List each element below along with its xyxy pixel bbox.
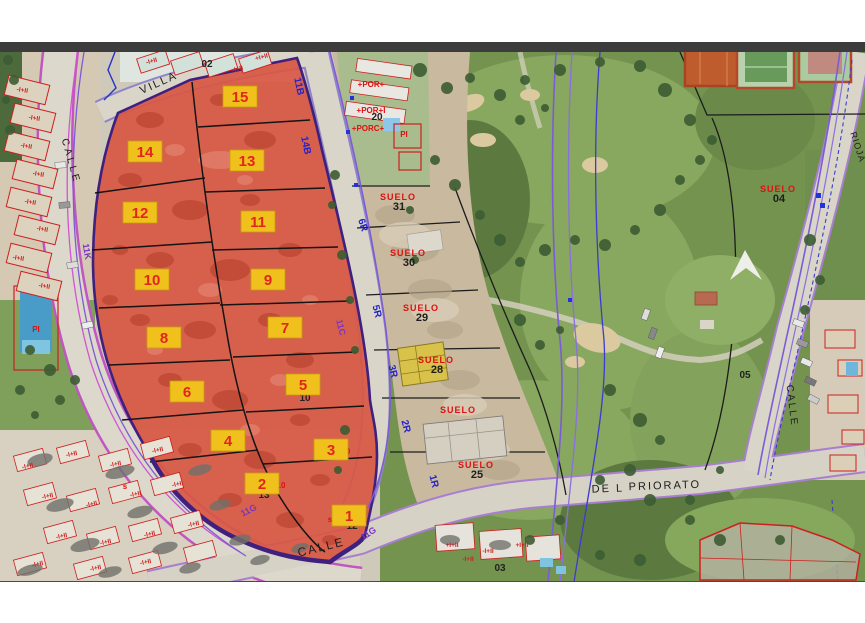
tree (630, 225, 640, 235)
tree (775, 535, 785, 545)
tree (541, 104, 549, 112)
tree (604, 384, 616, 396)
tree (413, 63, 427, 77)
parcel-tag-2: 2 (245, 473, 279, 494)
tree (555, 515, 565, 525)
tree (554, 64, 566, 76)
tree (465, 73, 475, 83)
red-zone-mottle (184, 321, 216, 339)
red-zone-mottle (165, 144, 185, 156)
parcel-tag-number: 12 (132, 205, 149, 222)
tree (570, 235, 580, 245)
tree (644, 494, 656, 506)
parked-car (67, 261, 79, 268)
tree (707, 135, 717, 145)
red-zone-mottle (118, 173, 142, 187)
screenshot-stage: -I+II-I+II-I+II-I+II-I+II-I+II-I+II-I+II… (0, 0, 865, 623)
tree (658, 83, 672, 97)
tree (654, 204, 666, 216)
tree (31, 411, 39, 419)
red-zone-mottle (244, 451, 276, 469)
street-name-label: PRIORATO (628, 479, 701, 494)
map-number-label: 03 (494, 563, 506, 574)
cadastral-mark: -I+II (482, 548, 494, 555)
tree (595, 57, 605, 67)
tree (449, 179, 461, 191)
tree (804, 234, 816, 246)
tree (441, 82, 453, 94)
suelo-number: 29 (416, 312, 428, 324)
parcel-tag-3: 3 (314, 439, 348, 460)
red-zone-mottle (278, 243, 302, 257)
suelo-number: 25 (471, 469, 483, 481)
parcel-tag-number: 3 (327, 442, 335, 459)
tree (514, 314, 526, 326)
red-zone-mottle (146, 252, 174, 268)
red-zone-mottle (172, 200, 208, 220)
parcel-tag-number: 11 (250, 214, 266, 231)
tree (25, 345, 35, 355)
tree (800, 305, 810, 315)
tree (55, 395, 65, 405)
tree (9, 75, 19, 85)
tree (515, 115, 525, 125)
parcel-tag-7: 7 (268, 317, 302, 338)
tree (430, 155, 440, 165)
tree (15, 385, 25, 395)
tree (346, 296, 354, 304)
map-red-label: +POR+ (358, 80, 385, 89)
map-number-label: 02 (201, 59, 213, 70)
suelo-number: 28 (431, 364, 443, 376)
tree (3, 55, 13, 65)
tree (334, 466, 342, 474)
tree (5, 125, 15, 135)
parcel-tag-number: 2 (258, 476, 266, 493)
top-bar (0, 42, 865, 52)
tree (685, 515, 695, 525)
red-zone-mottle (112, 245, 128, 255)
map-red-label: s (123, 482, 128, 491)
tree (675, 175, 685, 185)
parcel-tag-number: 8 (160, 330, 168, 347)
map-content: -I+II-I+II-I+II-I+II-I+II-I+II-I+II-I+II… (0, 30, 865, 585)
tree (684, 114, 696, 126)
red-zone-mottle (178, 443, 202, 457)
suelo-number: 04 (773, 193, 786, 205)
red-zone-mottle (310, 474, 330, 486)
red-zone-mottle (240, 194, 260, 206)
tree (624, 464, 636, 476)
tree (406, 206, 414, 214)
map-red-label: +PORC+ (352, 124, 385, 133)
map-red-label: PI (32, 325, 40, 334)
cadastral-mark: -I+II (462, 556, 474, 563)
red-zone-mottle (237, 175, 253, 185)
map-red-label: +POR+I (357, 106, 386, 115)
tree (2, 96, 10, 104)
parcel-tag-12: 12 (123, 202, 157, 223)
red-zone-mottle (244, 131, 276, 149)
tree (330, 170, 340, 180)
parcel-tag-13: 13 (230, 150, 264, 171)
tree (634, 554, 646, 566)
parcel-tag-15: 15 (223, 86, 257, 107)
tree (351, 346, 359, 354)
parked-car (55, 162, 66, 169)
tree (520, 75, 530, 85)
parcel-tag-14: 14 (128, 141, 162, 162)
street-name-label: DE L (591, 482, 624, 495)
suelo-number: 31 (393, 201, 405, 213)
cadastral-mark: +I+II (445, 542, 458, 549)
map-red-label: PI (400, 130, 408, 139)
suelo-label: SUELO (440, 405, 476, 415)
tree (515, 257, 525, 267)
tree (716, 466, 724, 474)
parcel-tag-6: 6 (170, 381, 204, 402)
parcel-tag-4: 4 (211, 430, 245, 451)
tree (599, 239, 611, 251)
parcel-tag-number: 7 (281, 320, 289, 337)
parcel-tag-number: 14 (137, 144, 154, 161)
tree (539, 244, 551, 256)
tree (475, 210, 485, 220)
tree (634, 60, 646, 72)
parcel-tag-9: 9 (251, 269, 285, 290)
tree (714, 534, 726, 546)
red-zone-mottle (130, 314, 150, 326)
parcel-tag-number: 13 (239, 153, 256, 170)
tree (815, 275, 825, 285)
suelo-number: 30 (403, 257, 415, 269)
parcel-tag-number: 4 (224, 433, 233, 450)
parcel-tag-number: 15 (232, 89, 249, 106)
red-zone-mottle (290, 414, 310, 426)
tree (328, 201, 336, 209)
map-number-label: 05 (739, 370, 751, 381)
parcel-tag-1: 1 (332, 505, 366, 526)
tree (44, 364, 56, 376)
tree (535, 340, 545, 350)
tree (494, 89, 506, 101)
tree (695, 155, 705, 165)
tree (595, 550, 605, 560)
parked-car (59, 202, 70, 209)
tree (556, 326, 564, 334)
tree (337, 250, 347, 260)
red-zone-mottle (302, 295, 318, 305)
tree (70, 375, 80, 385)
red-zone-mottle (102, 295, 118, 305)
parcel-tag-10: 10 (135, 269, 169, 290)
parcel-tag-number: 1 (345, 508, 353, 525)
tree (633, 413, 647, 427)
right-pool (846, 362, 858, 376)
parcel-tag-number: 5 (299, 377, 307, 394)
tree (685, 495, 695, 505)
parcel-tag-number: 9 (264, 272, 272, 289)
construction-building-gray (423, 416, 507, 464)
parcel-tag-number: 6 (183, 384, 191, 401)
red-zone-mottle (136, 112, 164, 128)
tree (340, 425, 350, 435)
parcel-tag-11: 11 (241, 211, 275, 232)
tree (494, 234, 506, 246)
parcel-tag-8: 8 (147, 327, 181, 348)
map-image: -I+II-I+II-I+II-I+II-I+II-I+II-I+II-I+II… (0, 0, 865, 623)
cadastral-mark: +I+II (515, 542, 528, 549)
parcel-tag-5: 5 (286, 374, 320, 395)
parcel-tag-number: 10 (144, 272, 161, 289)
tree (655, 435, 665, 445)
suelo-title: SUELO (440, 405, 476, 415)
